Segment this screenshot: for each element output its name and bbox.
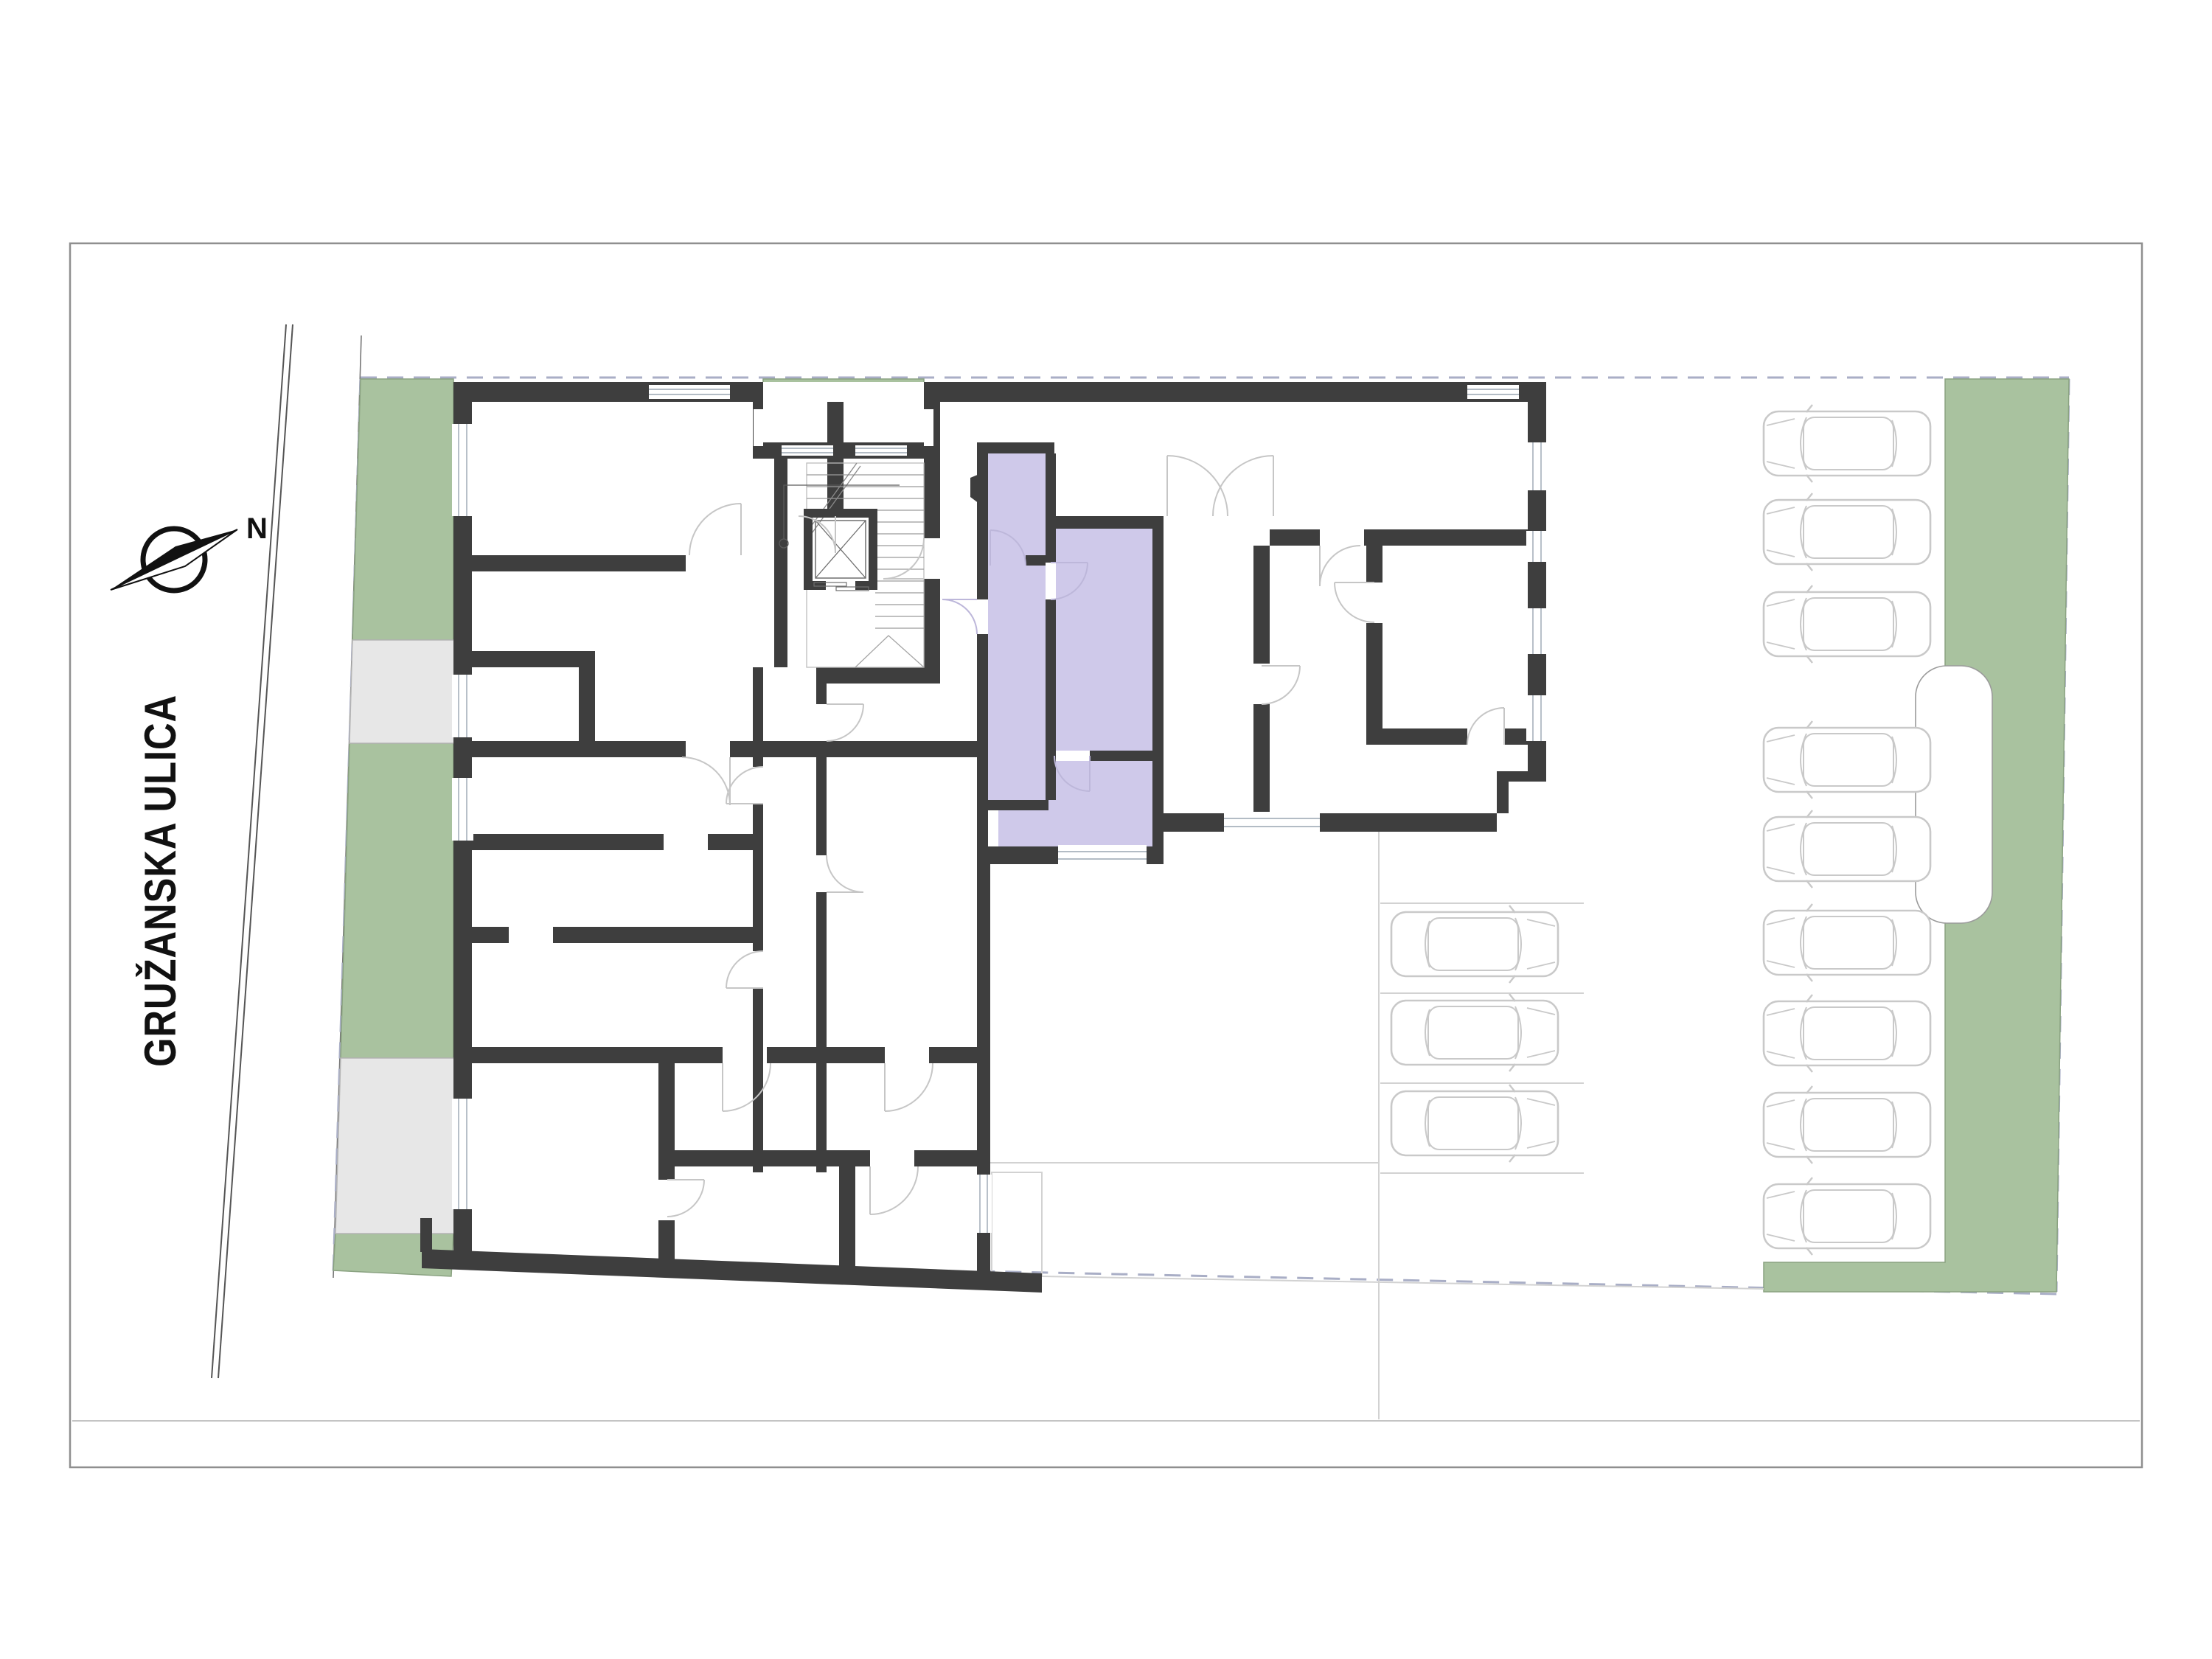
floor-plan-sheet: GRUŽANSKA ULICA N bbox=[0, 0, 2212, 1659]
car-top-view-icon bbox=[1391, 905, 1558, 983]
car-top-view-icon bbox=[1764, 585, 1930, 663]
green-strip-left-top bbox=[352, 379, 453, 640]
car-top-view-icon bbox=[1764, 721, 1930, 799]
green-strip-notch bbox=[1916, 666, 1992, 923]
car-top-view-icon bbox=[1764, 1086, 1930, 1164]
compass-label: N bbox=[246, 512, 268, 545]
car-top-view-icon bbox=[1764, 995, 1930, 1072]
car-top-view-icon bbox=[1391, 994, 1558, 1071]
car-top-view-icon bbox=[1764, 493, 1930, 571]
car-top-view-icon bbox=[1764, 904, 1930, 981]
street-name-label: GRUŽANSKA ULICA bbox=[136, 695, 185, 1067]
car-top-view-icon bbox=[1764, 405, 1930, 482]
green-strip-left-mid bbox=[341, 743, 453, 1058]
car-top-view-icon bbox=[1764, 810, 1930, 888]
car-top-view-icon bbox=[1391, 1085, 1558, 1162]
car-top-view-icon bbox=[1764, 1178, 1930, 1255]
driveway-lower bbox=[335, 1058, 472, 1234]
